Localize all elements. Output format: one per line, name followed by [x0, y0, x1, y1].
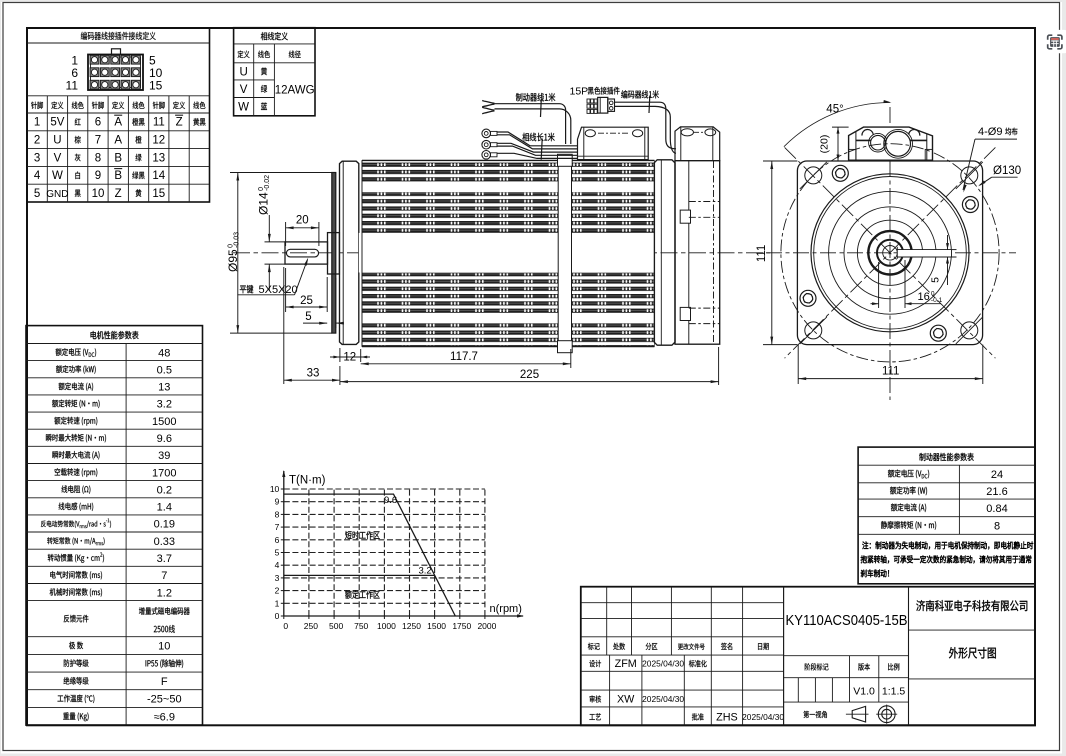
svg-text:ZFM: ZFM	[615, 658, 637, 670]
svg-text:GND: GND	[46, 189, 68, 200]
svg-text:U: U	[53, 135, 61, 147]
svg-text:W: W	[52, 170, 63, 182]
svg-text:39: 39	[158, 450, 170, 462]
svg-text:2025/04/30: 2025/04/30	[742, 712, 784, 722]
svg-text:3.7: 3.7	[157, 553, 172, 565]
svg-text:1:1.5: 1:1.5	[882, 686, 906, 698]
svg-text:8: 8	[275, 509, 280, 519]
svg-text:12: 12	[343, 351, 356, 363]
svg-text:1250: 1250	[402, 621, 421, 631]
svg-text:2000: 2000	[477, 621, 496, 631]
svg-text:3: 3	[275, 573, 280, 583]
svg-text:10: 10	[92, 188, 105, 200]
svg-text:14: 14	[152, 170, 165, 182]
svg-text:1: 1	[275, 598, 280, 608]
svg-text:≈6.9: ≈6.9	[154, 711, 175, 723]
svg-text:ZHS: ZHS	[716, 712, 738, 724]
svg-text:11: 11	[66, 79, 79, 93]
svg-text:9.6: 9.6	[384, 495, 397, 506]
svg-text:16: 16	[918, 291, 930, 303]
svg-text:V1.0: V1.0	[853, 686, 875, 698]
svg-text:-25~50: -25~50	[147, 694, 182, 706]
svg-text:0.2: 0.2	[157, 484, 172, 496]
svg-text:750: 750	[354, 621, 368, 631]
svg-text:(20): (20)	[819, 135, 831, 154]
svg-text:n(rpm): n(rpm)	[490, 603, 522, 615]
svg-text:13: 13	[158, 382, 170, 394]
svg-text:2025/04/30: 2025/04/30	[642, 694, 684, 704]
svg-text:5X5X20: 5X5X20	[259, 284, 298, 296]
svg-text:2: 2	[275, 586, 280, 596]
svg-text:-0.1: -0.1	[931, 297, 943, 304]
svg-text:15: 15	[149, 79, 163, 93]
svg-text:5V: 5V	[50, 117, 64, 129]
svg-text:8: 8	[994, 521, 1000, 533]
svg-text:0.84: 0.84	[986, 503, 1007, 515]
svg-text:9: 9	[95, 170, 101, 182]
svg-text:20: 20	[296, 215, 309, 227]
svg-text:Ø95: Ø95	[226, 249, 240, 272]
svg-text:7: 7	[161, 570, 167, 582]
svg-text:6: 6	[275, 535, 280, 545]
svg-text:6: 6	[95, 117, 101, 129]
svg-text:250: 250	[304, 621, 318, 631]
svg-text:2025/04/30: 2025/04/30	[642, 659, 684, 669]
svg-text:5: 5	[930, 277, 942, 283]
svg-text:7: 7	[95, 135, 101, 147]
svg-text:1700: 1700	[152, 467, 176, 479]
svg-text:1000: 1000	[377, 621, 396, 631]
svg-text:4: 4	[275, 560, 280, 570]
svg-text:117.7: 117.7	[450, 351, 478, 363]
svg-text:33: 33	[307, 368, 320, 380]
svg-text:10: 10	[270, 484, 280, 494]
svg-text:25: 25	[300, 295, 313, 307]
svg-text:U: U	[239, 67, 247, 79]
svg-text:A: A	[114, 135, 122, 147]
svg-text:B: B	[114, 170, 122, 182]
svg-text:-0.03: -0.03	[234, 232, 241, 248]
svg-text:3: 3	[34, 152, 40, 164]
svg-text:8: 8	[95, 152, 101, 164]
svg-text:10: 10	[158, 641, 170, 653]
svg-text:3.2: 3.2	[419, 566, 432, 577]
svg-text:Z: Z	[115, 188, 122, 200]
svg-text:4: 4	[34, 170, 41, 182]
svg-text:Z: Z	[176, 117, 183, 129]
svg-text:V: V	[240, 84, 248, 96]
svg-text:15P: 15P	[570, 85, 589, 97]
svg-text:1.2: 1.2	[157, 587, 172, 599]
svg-text:500: 500	[329, 621, 343, 631]
svg-text:B: B	[114, 152, 122, 164]
svg-text:7: 7	[275, 522, 280, 532]
svg-text:-0.02: -0.02	[264, 175, 271, 191]
svg-text:Ø130: Ø130	[993, 165, 1021, 177]
svg-text:12AWG: 12AWG	[275, 85, 315, 97]
svg-text:W: W	[238, 102, 249, 114]
svg-text:4-Ø9: 4-Ø9	[978, 126, 1002, 138]
svg-text:1500: 1500	[152, 416, 176, 428]
svg-text:5: 5	[305, 311, 311, 323]
svg-text:2: 2	[34, 135, 40, 147]
svg-text:V: V	[54, 152, 62, 164]
svg-text:111: 111	[756, 245, 768, 262]
svg-text:0: 0	[283, 621, 288, 631]
svg-text:Ø14: Ø14	[257, 192, 271, 215]
svg-text:0.19: 0.19	[154, 519, 175, 531]
svg-text:12: 12	[152, 135, 165, 147]
svg-text:1.4: 1.4	[157, 502, 172, 514]
svg-text:KY110ACS0405-15B: KY110ACS0405-15B	[786, 612, 908, 629]
svg-text:1500: 1500	[427, 621, 446, 631]
svg-text:11: 11	[153, 117, 165, 129]
svg-text:15: 15	[152, 188, 165, 200]
svg-text:45°: 45°	[826, 104, 843, 116]
svg-text:A: A	[114, 117, 122, 129]
svg-text:13: 13	[152, 152, 165, 164]
svg-text:5: 5	[34, 188, 40, 200]
svg-text:48: 48	[158, 347, 170, 359]
svg-text:111: 111	[882, 365, 899, 377]
svg-text:F: F	[161, 676, 168, 688]
svg-text:0.5: 0.5	[157, 364, 172, 376]
svg-text:24: 24	[991, 469, 1003, 481]
svg-text:9: 9	[275, 497, 280, 507]
svg-text:3.2: 3.2	[157, 399, 172, 411]
svg-text:21.6: 21.6	[986, 486, 1007, 498]
svg-text:0.33: 0.33	[154, 536, 175, 548]
svg-text:9.6: 9.6	[157, 433, 172, 445]
svg-text:T(N·m): T(N·m)	[289, 475, 326, 487]
svg-text:5: 5	[275, 548, 280, 558]
svg-text:XW: XW	[617, 694, 635, 706]
svg-text:0: 0	[275, 611, 280, 621]
svg-text:225: 225	[520, 369, 539, 381]
svg-text:1: 1	[34, 117, 40, 129]
svg-text:1750: 1750	[452, 621, 471, 631]
